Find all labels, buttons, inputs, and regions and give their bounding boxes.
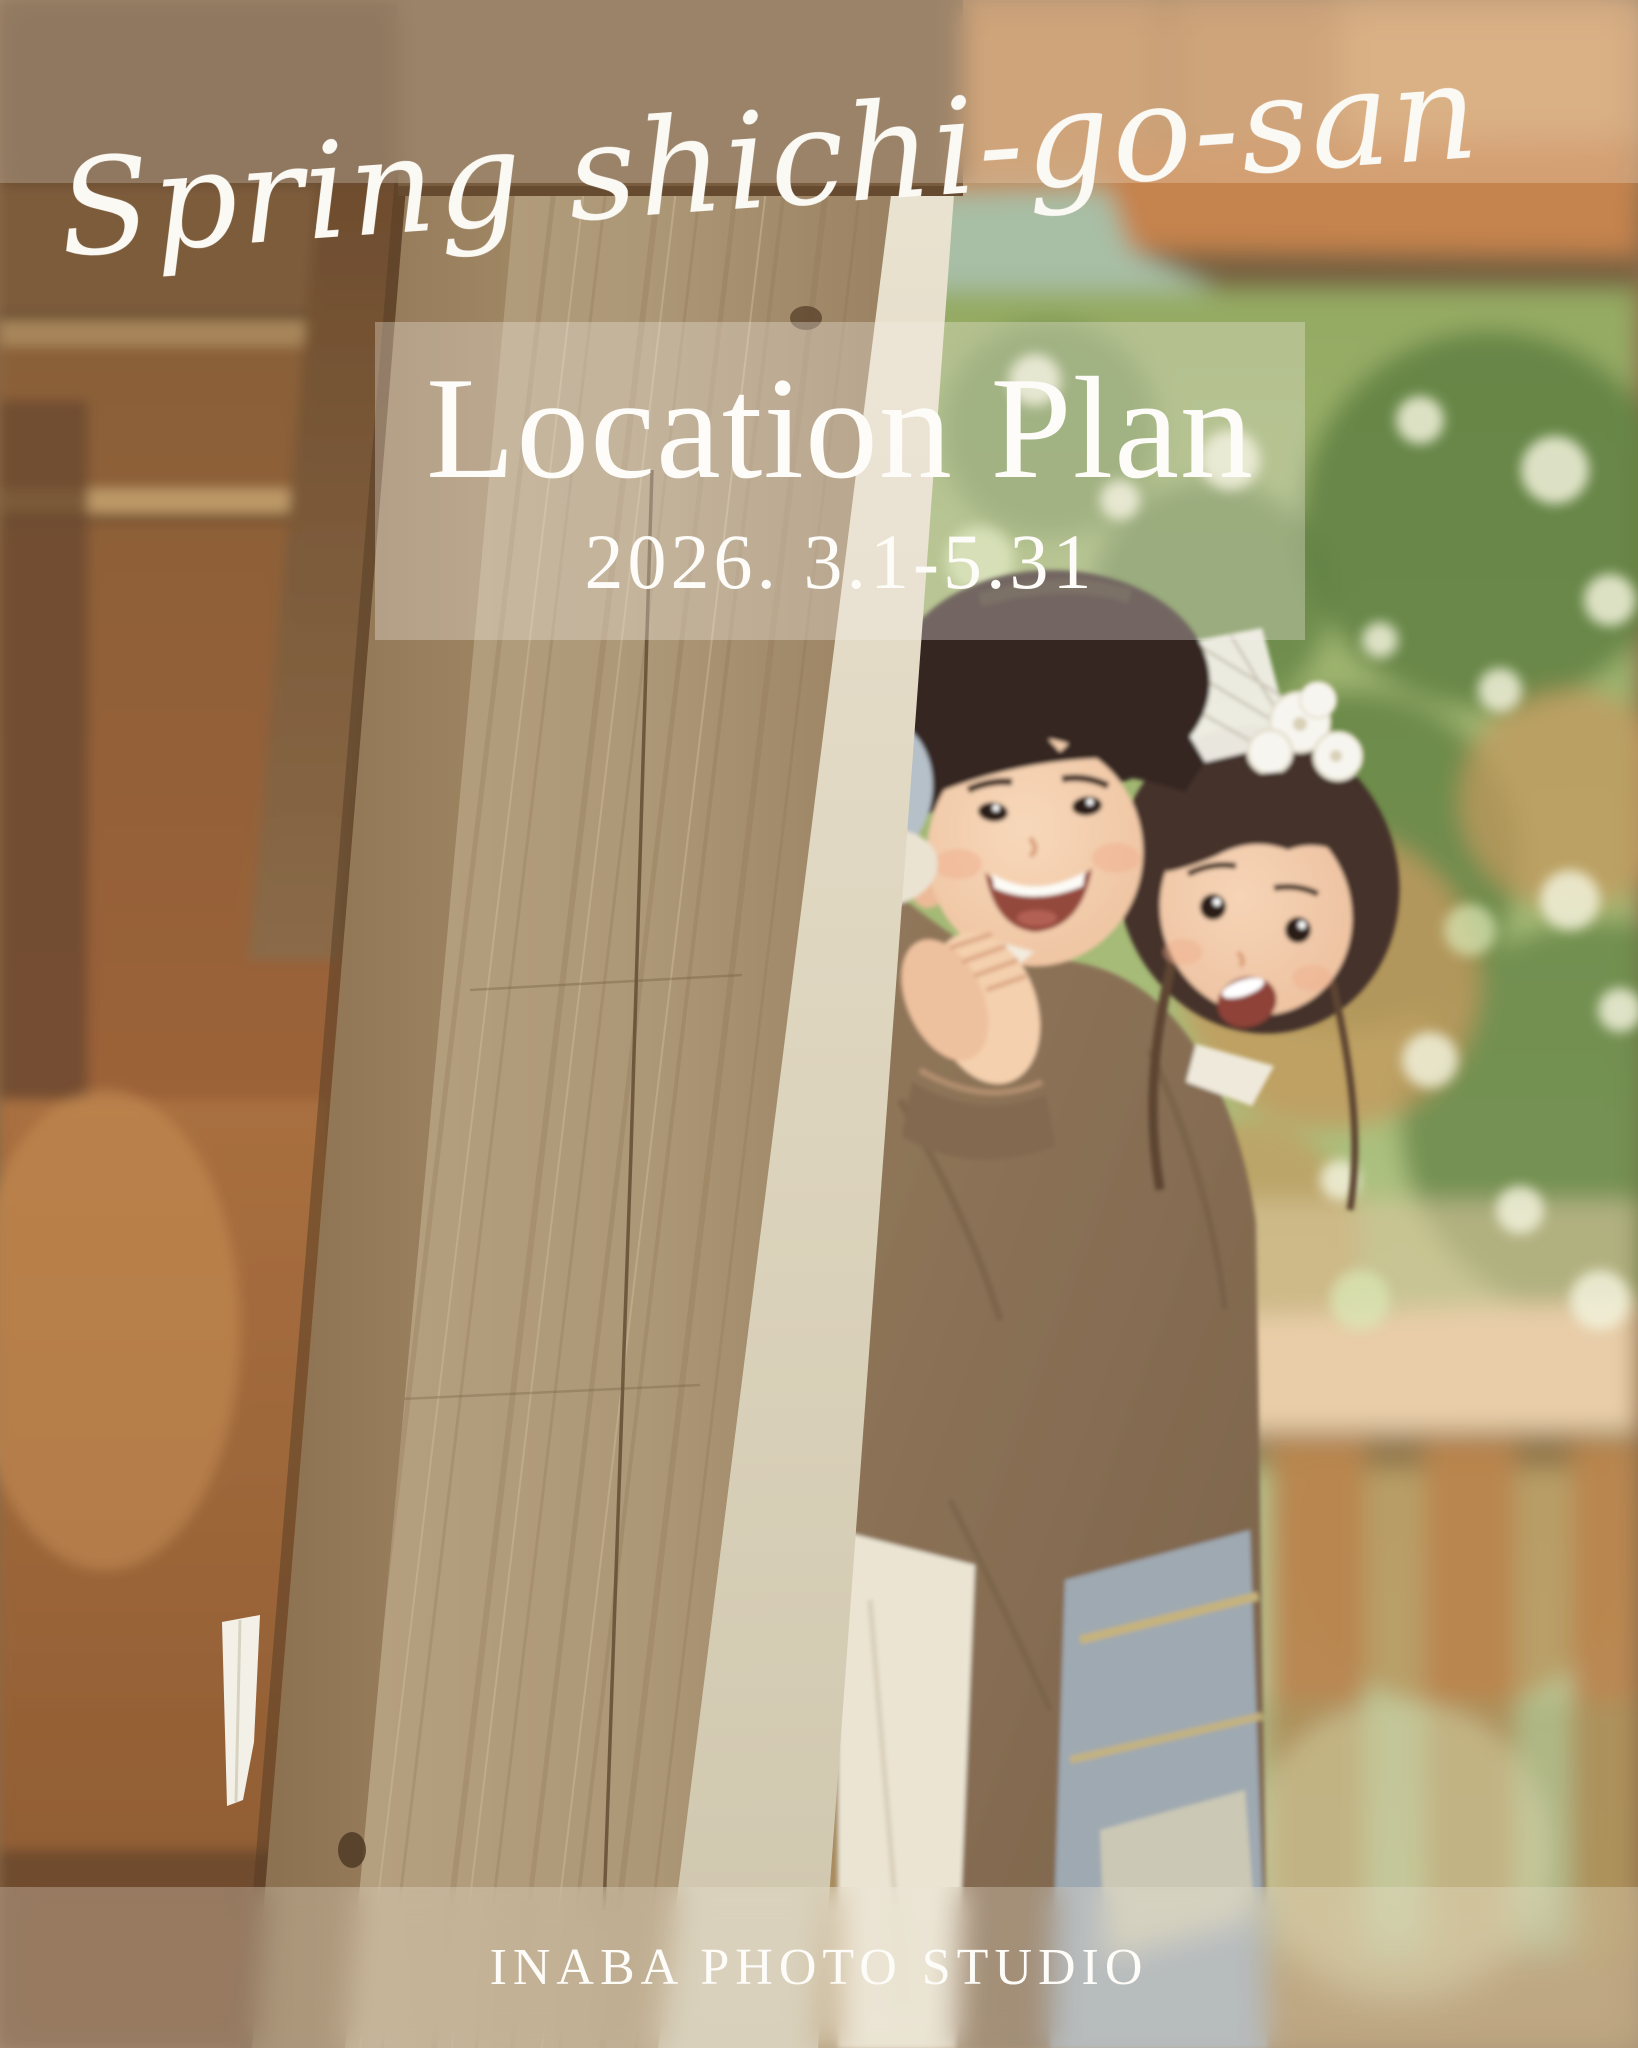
studio-name: INABA PHOTO STUDIO xyxy=(490,1938,1149,1997)
plan-date-range: 2026. 3.1-5.31 xyxy=(585,523,1096,601)
plan-overlay-box: Location Plan 2026. 3.1-5.31 xyxy=(375,322,1305,640)
plan-title: Location Plan xyxy=(426,355,1254,501)
bottom-frosted-band: INABA PHOTO STUDIO xyxy=(0,1887,1638,2048)
shrine-photo xyxy=(0,0,1638,2048)
poster-page: Spring shichi-go-san Location Plan 2026.… xyxy=(0,0,1638,2048)
